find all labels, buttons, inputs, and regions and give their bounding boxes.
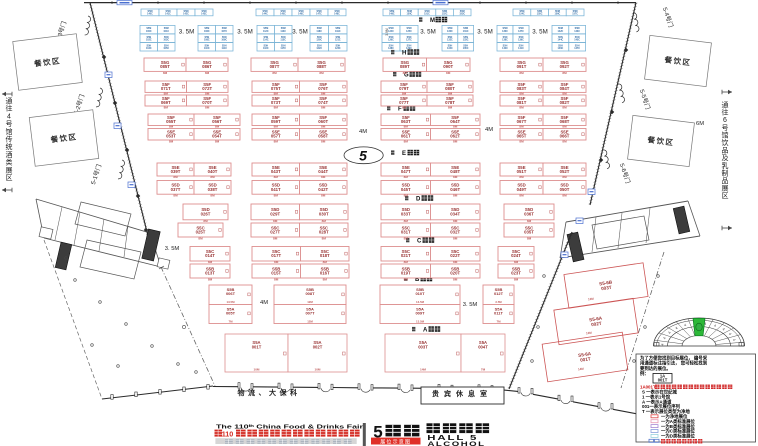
svg-text:082T: 082T (560, 100, 570, 105)
svg-text:005T: 005T (226, 311, 236, 316)
svg-text:135C: 135C (463, 47, 469, 50)
svg-text:113C: 113C (280, 30, 286, 33)
svg-text:制: 制 (722, 168, 729, 177)
svg-text:8M: 8M (208, 278, 213, 282)
svg-text:8M: 8M (404, 260, 409, 264)
svg-text:071T: 071T (161, 86, 171, 91)
svg-text:119C: 119C (335, 30, 341, 33)
svg-text:034T: 034T (450, 211, 460, 216)
svg-text:010T: 010T (415, 291, 425, 296)
svg-text:004T: 004T (478, 345, 488, 350)
svg-text:039T: 039T (171, 169, 181, 174)
svg-text:The 110ᵗʰ China Food & Drinks: The 110ᵗʰ China Food & Drinks Fair (216, 424, 364, 431)
svg-text:例：: 例： (640, 370, 649, 377)
svg-text:072T: 072T (202, 86, 212, 91)
svg-text:8M: 8M (562, 193, 567, 197)
svg-text:乳: 乳 (722, 161, 729, 170)
svg-text:8M: 8M (453, 278, 458, 282)
svg-text:146C: 146C (298, 13, 304, 16)
svg-text:4M: 4M (359, 129, 367, 135)
svg-text:8M: 8M (164, 105, 169, 109)
svg-text:8M: 8M (453, 193, 458, 197)
svg-text:102C: 102C (146, 38, 152, 41)
svg-text:4: 4 (7, 113, 11, 120)
svg-text:008T: 008T (305, 291, 315, 296)
svg-text:8M: 8M (215, 139, 220, 143)
svg-text:026T: 026T (201, 211, 211, 216)
svg-text:8M: 8M (453, 124, 458, 128)
svg-text:8M: 8M (273, 219, 278, 223)
svg-text:044T: 044T (318, 169, 328, 174)
svg-text:10M: 10M (253, 368, 259, 372)
svg-text:通: 通 (722, 100, 729, 109)
svg-text:105C: 105C (163, 47, 169, 50)
svg-text:8M: 8M (274, 175, 279, 179)
svg-text:077T: 077T (399, 100, 409, 105)
svg-text:8M: 8M (321, 193, 326, 197)
svg-text:130C: 130C (447, 30, 453, 33)
svg-text:011T: 011T (494, 311, 503, 316)
svg-text:138C: 138C (502, 38, 508, 41)
svg-text:8M: 8M (323, 278, 328, 282)
svg-text:8M: 8M (562, 105, 567, 109)
svg-text:类: 类 (6, 158, 13, 167)
svg-text:083T: 083T (517, 86, 527, 91)
svg-text:117C: 117C (280, 47, 286, 50)
svg-text:8M: 8M (321, 139, 326, 143)
svg-text:8M: 8M (169, 124, 174, 128)
svg-text:8M: 8M (519, 193, 524, 197)
svg-text:003T: 003T (418, 345, 428, 350)
svg-text:106C: 106C (204, 30, 210, 33)
svg-text:137C: 137C (518, 30, 524, 33)
svg-text:076T: 076T (318, 86, 328, 91)
svg-text:156C: 156C (555, 13, 561, 16)
svg-text:H: H (402, 51, 406, 57)
svg-text:048T: 048T (450, 169, 460, 174)
svg-text:019T: 019T (401, 270, 411, 275)
svg-text:8M: 8M (519, 71, 524, 75)
svg-text:025T: 025T (196, 229, 206, 234)
svg-text:061T: 061T (401, 134, 411, 139)
svg-text:139C: 139C (518, 38, 524, 41)
svg-text:084T: 084T (560, 86, 570, 91)
svg-text:8M: 8M (514, 278, 519, 282)
svg-text:12M: 12M (586, 331, 593, 336)
svg-text:118C: 118C (316, 30, 322, 33)
svg-text:8M: 8M (274, 124, 279, 128)
svg-text:054T: 054T (212, 134, 222, 139)
svg-text:057T: 057T (271, 134, 281, 139)
svg-text:110: 110 (222, 429, 234, 438)
svg-text:8M: 8M (519, 105, 524, 109)
svg-text:往: 往 (722, 108, 729, 117)
svg-text:8M: 8M (210, 193, 215, 197)
svg-text:122C: 122C (316, 47, 322, 50)
svg-text:号: 号 (6, 120, 13, 128)
svg-text:065T: 065T (517, 134, 527, 139)
svg-text:140C: 140C (502, 47, 508, 50)
svg-text:116C: 116C (263, 47, 269, 50)
svg-text:展位示意图: 展位示意图 (380, 438, 411, 445)
svg-text:7M: 7M (481, 368, 486, 372)
svg-text:110C: 110C (204, 47, 210, 50)
svg-text:3. 5M: 3. 5M (165, 246, 180, 252)
svg-text:一为D类标准展位: 一为D类标准展位 (661, 433, 696, 440)
svg-text:091T: 091T (517, 64, 527, 69)
svg-text:120C: 120C (316, 38, 322, 41)
svg-text:021T: 021T (401, 253, 411, 258)
svg-text:040T: 040T (208, 169, 218, 174)
svg-text:081T: 081T (517, 100, 527, 105)
svg-text:126C: 126C (388, 38, 394, 41)
svg-text:13.5M: 13.5M (416, 300, 425, 304)
svg-text:3.5M: 3.5M (495, 300, 502, 304)
svg-text:031T: 031T (401, 229, 411, 234)
svg-text:贵宾休息室: 贵宾休息室 (432, 389, 492, 398)
svg-text:C: C (417, 239, 422, 245)
svg-text:148C: 148C (334, 13, 340, 16)
svg-text:085T: 085T (160, 64, 170, 69)
svg-text:153C: 153C (459, 13, 465, 16)
svg-text:101C: 101C (163, 30, 169, 33)
svg-text:3. 5M: 3. 5M (292, 29, 307, 36)
svg-text:8M: 8M (322, 237, 327, 241)
svg-text:12M: 12M (588, 297, 595, 302)
svg-text:001T: 001T (658, 378, 668, 383)
svg-text:M: M (430, 18, 435, 24)
svg-text:073T: 073T (271, 100, 281, 105)
svg-text:017T: 017T (271, 253, 281, 258)
svg-text:016T: 016T (320, 270, 330, 275)
svg-text:109C: 109C (221, 38, 227, 41)
svg-text:展: 展 (6, 166, 13, 174)
svg-text:035T: 035T (524, 229, 534, 234)
svg-text:区: 区 (6, 174, 13, 182)
svg-text:8M: 8M (448, 105, 453, 109)
svg-text:157C: 157C (572, 13, 578, 16)
svg-text:103C: 103C (163, 38, 169, 41)
svg-text:033T: 033T (401, 211, 411, 216)
svg-text:8M: 8M (453, 175, 458, 179)
svg-text:020T: 020T (450, 270, 460, 275)
svg-text:037T: 037T (171, 187, 181, 192)
svg-text:152C: 152C (442, 13, 448, 16)
svg-text:4: 4 (661, 343, 665, 345)
svg-text:馆: 馆 (6, 127, 13, 136)
svg-text:042T: 042T (318, 187, 328, 192)
svg-text:145C: 145C (280, 13, 286, 16)
svg-text:3. 5M: 3. 5M (237, 29, 252, 36)
svg-text:089T: 089T (400, 64, 410, 69)
svg-text:8M: 8M (215, 124, 220, 128)
svg-text:150C: 150C (407, 13, 413, 16)
svg-text:111C: 111C (221, 47, 227, 50)
svg-text:149C: 149C (389, 13, 395, 16)
svg-text:8M: 8M (446, 71, 451, 75)
svg-text:043T: 043T (271, 169, 281, 174)
svg-text:023T: 023T (511, 270, 521, 275)
svg-text:8M: 8M (562, 139, 567, 143)
svg-text:8M: 8M (404, 139, 409, 143)
svg-text:050T: 050T (560, 187, 570, 192)
svg-text:8M: 8M (169, 139, 174, 143)
svg-text:号: 号 (722, 124, 729, 132)
svg-text:区: 区 (722, 192, 729, 200)
svg-text:069T: 069T (161, 100, 171, 105)
svg-text:8M: 8M (453, 219, 458, 223)
svg-text:124C: 124C (388, 30, 394, 33)
svg-text:8M: 8M (322, 219, 327, 223)
svg-text:8M: 8M (323, 260, 328, 264)
svg-text:107C: 107C (221, 30, 227, 33)
svg-text:3. 5M: 3. 5M (463, 302, 478, 308)
svg-text:115C: 115C (280, 38, 286, 41)
svg-text:087T: 087T (270, 64, 280, 69)
svg-text:8M: 8M (319, 71, 324, 75)
svg-text:8M: 8M (453, 139, 458, 143)
svg-text:147C: 147C (316, 13, 322, 16)
svg-text:E: E (402, 151, 406, 157)
svg-text:024T: 024T (511, 253, 521, 258)
svg-text:8M: 8M (274, 278, 279, 282)
svg-text:及: 及 (722, 154, 729, 162)
svg-text:045T: 045T (401, 187, 411, 192)
svg-text:047T: 047T (401, 169, 411, 174)
svg-text:D: D (416, 197, 421, 203)
svg-text:147C: 147C (574, 47, 580, 50)
svg-text:018T: 018T (320, 253, 330, 258)
svg-text:饮: 饮 (722, 138, 729, 147)
svg-text:ALCOHOL: ALCOHOL (428, 441, 486, 446)
svg-text:029T: 029T (270, 211, 280, 216)
svg-text:079T: 079T (399, 86, 409, 91)
svg-text:009T: 009T (415, 311, 425, 316)
svg-text:131C: 131C (463, 30, 469, 33)
svg-text:128C: 128C (388, 47, 394, 50)
svg-text:8M: 8M (273, 237, 278, 241)
svg-text:132C: 132C (447, 38, 453, 41)
svg-text:8M: 8M (321, 175, 326, 179)
svg-text:馆: 馆 (722, 130, 729, 139)
svg-text:032T: 032T (450, 229, 460, 234)
svg-text:4M: 4M (260, 300, 268, 306)
svg-text:8M: 8M (562, 175, 567, 179)
svg-text:8M: 8M (527, 237, 532, 241)
svg-text:8M: 8M (274, 193, 279, 197)
svg-text:物流、大保科: 物流、大保科 (238, 388, 301, 397)
svg-text:052T: 052T (560, 169, 570, 174)
svg-text:8M: 8M (173, 175, 178, 179)
svg-text:6: 6 (723, 117, 727, 124)
svg-text:027T: 027T (270, 229, 280, 234)
svg-text:8M: 8M (402, 105, 407, 109)
svg-text:062T: 062T (450, 134, 460, 139)
svg-text:8M: 8M (527, 219, 532, 223)
svg-text:8M: 8M (321, 105, 326, 109)
svg-text:146C: 146C (558, 47, 564, 50)
svg-text:142C: 142C (558, 30, 564, 33)
svg-text:100C: 100C (146, 30, 152, 33)
svg-text:品: 品 (722, 147, 729, 155)
svg-text:007T: 007T (305, 311, 315, 316)
svg-text:123C: 123C (335, 47, 341, 50)
svg-text:8M: 8M (205, 71, 210, 75)
svg-text:078T: 078T (445, 100, 455, 105)
svg-text:8M: 8M (404, 237, 409, 241)
svg-text:8M: 8M (514, 260, 519, 264)
svg-text:104C: 104C (146, 47, 152, 50)
svg-text:112C: 112C (263, 30, 269, 33)
svg-text:125C: 125C (406, 30, 412, 33)
svg-text:8M: 8M (519, 124, 524, 128)
svg-text:142C: 142C (183, 13, 189, 16)
svg-text:092T: 092T (560, 64, 570, 69)
svg-text:141C: 141C (165, 13, 171, 16)
svg-text:012T: 012T (494, 291, 504, 296)
svg-text:015T: 015T (271, 270, 281, 275)
svg-text:036T: 036T (524, 211, 534, 216)
svg-text:8M: 8M (404, 193, 409, 197)
svg-text:8M: 8M (562, 71, 567, 75)
svg-text:5: 5 (359, 147, 367, 163)
svg-text:144C: 144C (558, 38, 564, 41)
svg-text:143C: 143C (201, 13, 207, 16)
svg-text:8M: 8M (198, 237, 203, 241)
svg-text:7M: 7M (228, 320, 233, 324)
svg-text:12M: 12M (307, 300, 313, 304)
svg-text:070T: 070T (202, 100, 212, 105)
svg-text:展: 展 (722, 185, 729, 193)
svg-text:066T: 066T (560, 134, 570, 139)
svg-text:酒: 酒 (6, 151, 13, 159)
svg-text:13.5M: 13.5M (226, 300, 235, 304)
svg-text:136C: 136C (502, 30, 508, 33)
svg-text:3. 5M: 3. 5M (477, 29, 492, 36)
svg-text:传: 传 (6, 135, 13, 144)
svg-text:014T: 014T (205, 253, 215, 258)
svg-text:8M: 8M (274, 139, 279, 143)
svg-text:075T: 075T (271, 86, 281, 91)
svg-text:143C: 143C (574, 30, 580, 33)
svg-text:品: 品 (722, 177, 729, 185)
svg-text:8M: 8M (173, 193, 178, 197)
svg-text:8M: 8M (404, 175, 409, 179)
svg-text:030T: 030T (319, 211, 329, 216)
svg-text:046T: 046T (450, 187, 460, 192)
svg-text:8M: 8M (203, 219, 208, 223)
svg-text:8M: 8M (205, 105, 210, 109)
svg-text:028T: 028T (319, 229, 329, 234)
svg-text:114C: 114C (263, 38, 269, 41)
svg-text:134C: 134C (447, 47, 453, 50)
svg-text:038T: 038T (208, 187, 218, 192)
svg-text:4M: 4M (485, 127, 493, 133)
svg-text:8M: 8M (404, 124, 409, 128)
svg-text:058T: 058T (318, 134, 328, 139)
svg-text:144C: 144C (262, 13, 268, 16)
svg-text:090T: 090T (443, 64, 453, 69)
svg-text:053T: 053T (166, 134, 176, 139)
svg-text:080T: 080T (445, 86, 455, 91)
svg-text:8M: 8M (562, 124, 567, 128)
svg-text:121C: 121C (335, 38, 341, 41)
svg-text:12M: 12M (307, 320, 313, 324)
svg-text:001T: 001T (252, 345, 262, 350)
svg-text:049T: 049T (517, 187, 527, 192)
svg-text:8M: 8M (210, 175, 215, 179)
svg-text:8M: 8M (519, 175, 524, 179)
svg-text:013T: 013T (205, 270, 215, 275)
svg-text:022T: 022T (450, 253, 460, 258)
svg-text:A: A (423, 328, 428, 334)
svg-text:8M: 8M (208, 260, 213, 264)
svg-text:006T: 006T (226, 291, 236, 296)
svg-text:14M: 14M (420, 368, 426, 372)
svg-text:8M: 8M (274, 260, 279, 264)
svg-text:8M: 8M (321, 124, 326, 128)
svg-text:127C: 127C (406, 38, 412, 41)
svg-text:145C: 145C (574, 38, 580, 41)
svg-text:8M: 8M (404, 219, 409, 223)
svg-text:154C: 154C (519, 13, 525, 16)
svg-text:14M: 14M (578, 367, 585, 372)
svg-text:往: 往 (6, 104, 13, 113)
svg-text:3. 5M: 3. 5M (179, 29, 194, 36)
svg-text:8M: 8M (274, 105, 279, 109)
svg-text:088T: 088T (317, 64, 327, 69)
svg-text:3. 5M: 3. 5M (420, 29, 435, 36)
svg-text:8M: 8M (272, 71, 277, 75)
svg-text:133C: 133C (463, 38, 469, 41)
svg-text:141C: 141C (518, 47, 524, 50)
svg-text:8M: 8M (453, 260, 458, 264)
svg-text:074T: 074T (318, 100, 328, 105)
svg-text:8M: 8M (403, 71, 408, 75)
svg-text:041T: 041T (271, 187, 281, 192)
svg-text:155C: 155C (537, 13, 543, 16)
svg-text:6M: 6M (696, 121, 704, 127)
svg-text:3.9M: 3.9M (385, 28, 389, 36)
svg-text:13.5M: 13.5M (416, 320, 425, 324)
svg-text:通: 通 (6, 96, 13, 105)
svg-text:8M: 8M (404, 278, 409, 282)
svg-text:3. 5M: 3. 5M (532, 29, 547, 36)
svg-text:7M: 7M (496, 320, 501, 324)
svg-text:086T: 086T (202, 64, 212, 69)
svg-text:051T: 051T (517, 169, 527, 174)
svg-text:140C: 140C (147, 13, 153, 16)
svg-text:8M: 8M (163, 71, 168, 75)
svg-text:108C: 108C (204, 38, 210, 41)
svg-text:8M: 8M (519, 139, 524, 143)
svg-text:统: 统 (6, 142, 13, 151)
svg-text:002T: 002T (313, 345, 323, 350)
svg-text:8M: 8M (453, 237, 458, 241)
svg-text:151C: 151C (424, 13, 430, 16)
svg-text:10M: 10M (314, 368, 320, 372)
